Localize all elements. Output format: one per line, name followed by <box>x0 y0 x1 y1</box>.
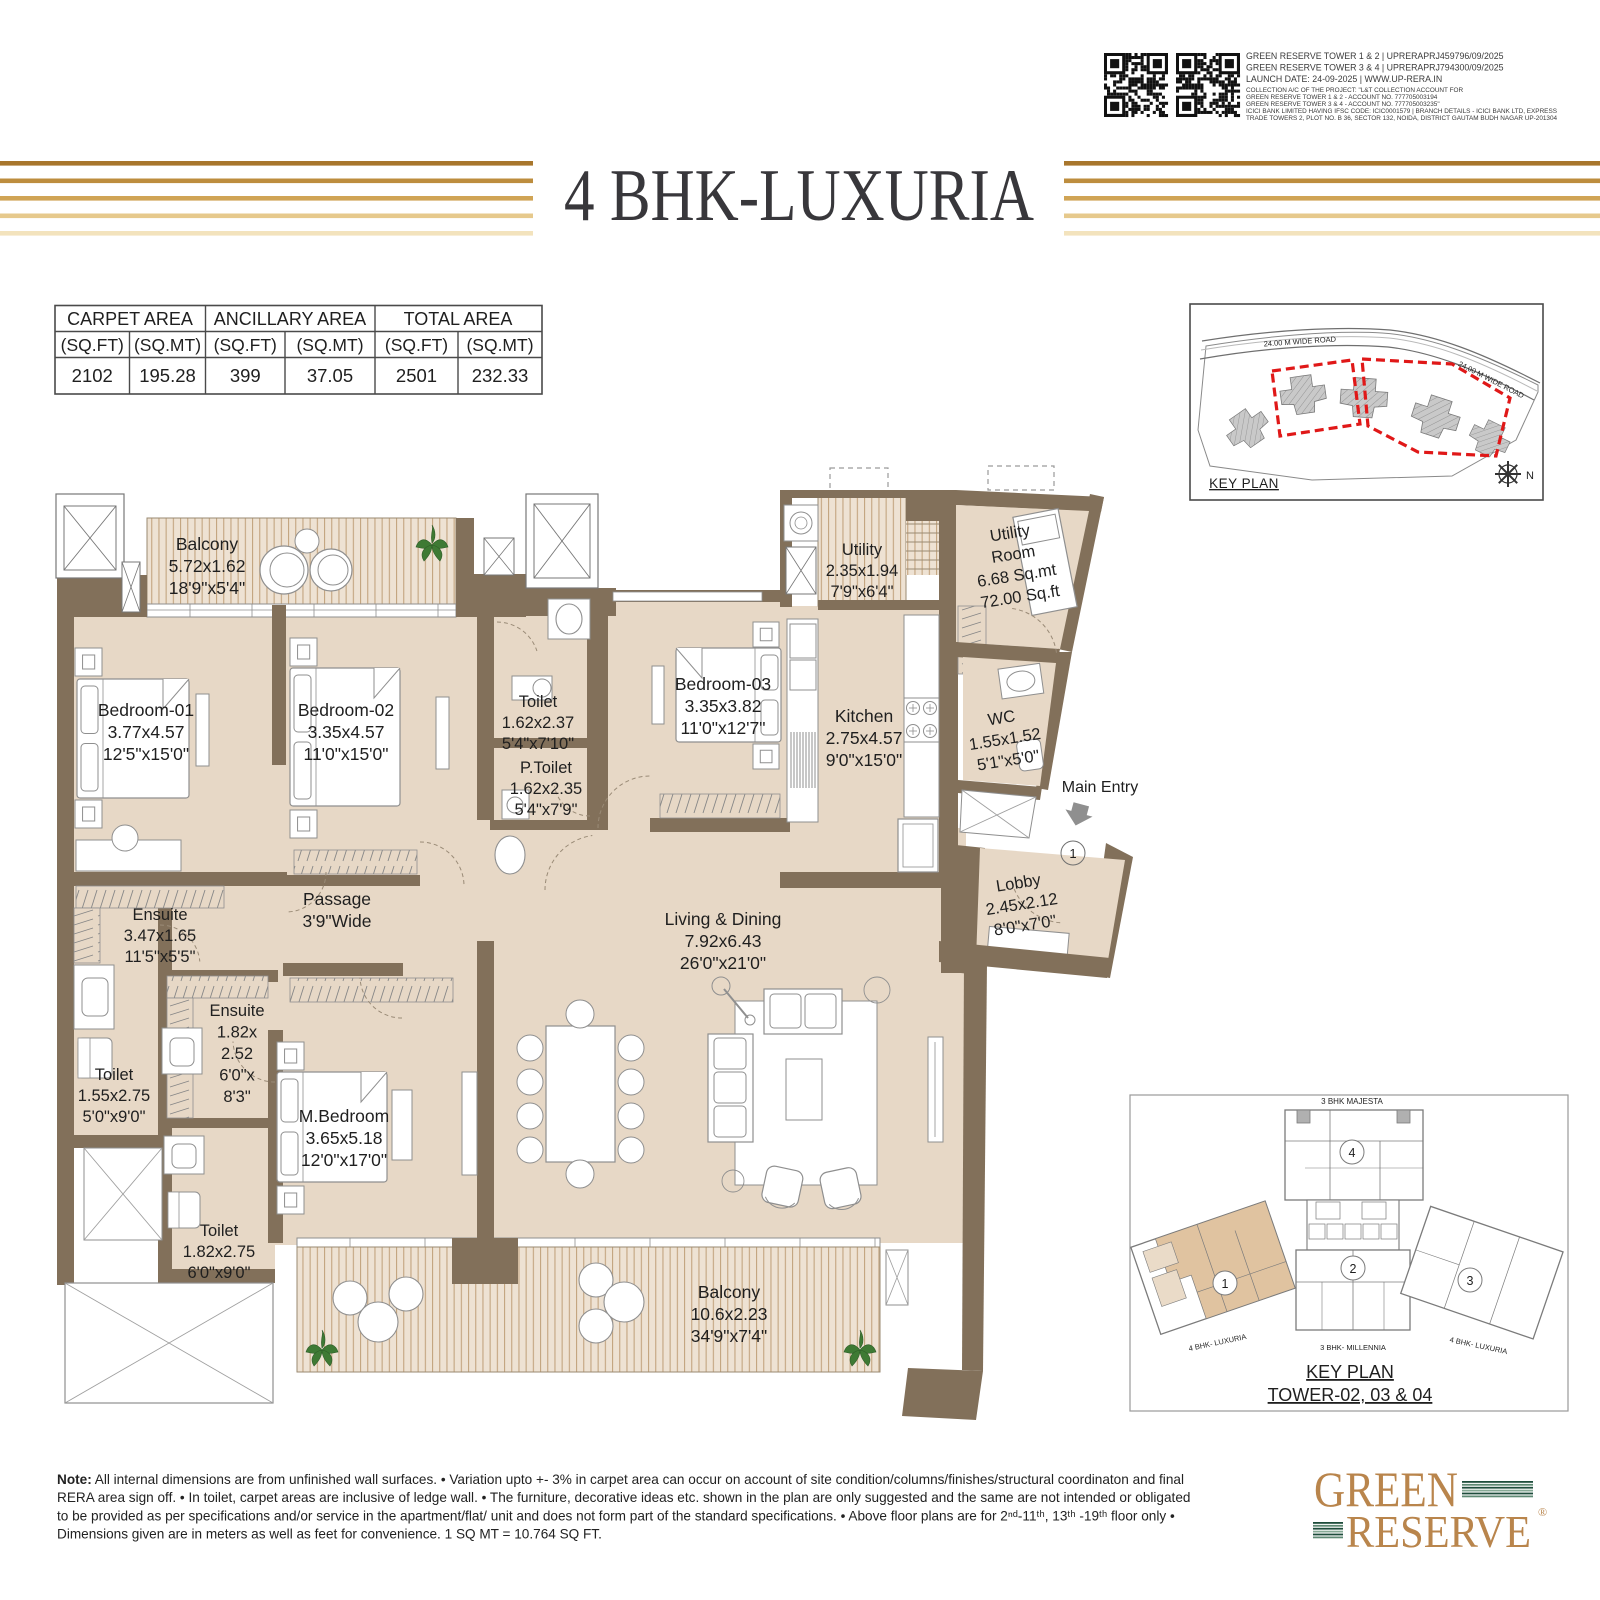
svg-text:COLLECTION A/C OF THE PROJECT:: COLLECTION A/C OF THE PROJECT: "L&T COLL… <box>1246 87 1463 94</box>
svg-text:Bedroom-03: Bedroom-03 <box>675 674 771 694</box>
svg-text:GREEN RESERVE TOWER 3 & 4 - AC: GREEN RESERVE TOWER 3 & 4 - ACCOUNT NO. … <box>1246 101 1440 108</box>
svg-text:2.35x1.94: 2.35x1.94 <box>826 562 898 580</box>
svg-text:1: 1 <box>1069 846 1076 861</box>
svg-text:3 BHK MAJESTA: 3 BHK MAJESTA <box>1321 1097 1383 1106</box>
svg-text:ICICI BANK LIMITED HAVING IFSC: ICICI BANK LIMITED HAVING IFSC CODE: ICI… <box>1246 108 1557 115</box>
svg-text:18'9"x5'4": 18'9"x5'4" <box>169 578 246 598</box>
svg-text:Living & Dining: Living & Dining <box>665 909 782 929</box>
svg-text:Passage: Passage <box>303 889 371 909</box>
svg-text:399: 399 <box>230 365 261 386</box>
svg-text:7'9"x6'4": 7'9"x6'4" <box>831 583 894 601</box>
svg-text:1.62x2.37: 1.62x2.37 <box>502 714 574 732</box>
svg-text:Main Entry: Main Entry <box>1062 779 1138 796</box>
svg-text:Utility: Utility <box>842 541 883 559</box>
svg-text:Ensuite: Ensuite <box>132 906 187 924</box>
svg-text:(SQ.MT): (SQ.MT) <box>134 335 201 355</box>
svg-text:KEY PLAN: KEY PLAN <box>1306 1362 1394 1382</box>
svg-text:CARPET AREA: CARPET AREA <box>67 309 193 329</box>
svg-text:Note: All internal dimensions: Note: All internal dimensions are from u… <box>57 1472 1184 1487</box>
svg-text:37.05: 37.05 <box>307 365 353 386</box>
svg-text:to be provided as per specific: to be provided as per specifications and… <box>57 1508 1175 1523</box>
svg-text:6'0"x: 6'0"x <box>219 1067 255 1085</box>
svg-text:GREEN RESERVE TOWER 1 & 2 - AC: GREEN RESERVE TOWER 1 & 2 - ACCOUNT NO. … <box>1246 94 1438 101</box>
svg-text:12'5"x15'0": 12'5"x15'0" <box>103 744 189 764</box>
svg-text:3.35x3.82: 3.35x3.82 <box>685 696 762 716</box>
svg-text:LAUNCH DATE: 24-09-2025 | WWW.: LAUNCH DATE: 24-09-2025 | WWW.UP-RERA.IN <box>1246 74 1442 84</box>
svg-text:GREEN RESERVE TOWER 1 & 2 | UP: GREEN RESERVE TOWER 1 & 2 | UPRERAPRJ459… <box>1246 51 1504 61</box>
svg-text:®: ® <box>1538 1505 1547 1519</box>
svg-text:(SQ.MT): (SQ.MT) <box>466 335 533 355</box>
svg-text:9'0"x15'0": 9'0"x15'0" <box>826 750 903 770</box>
svg-text:12'0"x17'0": 12'0"x17'0" <box>301 1150 387 1170</box>
svg-text:Kitchen: Kitchen <box>835 706 893 726</box>
svg-text:3'9"Wide: 3'9"Wide <box>303 911 372 931</box>
svg-text:2.75x4.57: 2.75x4.57 <box>826 728 903 748</box>
svg-text:6'0"x9'0": 6'0"x9'0" <box>188 1264 251 1282</box>
svg-text:P.Toilet: P.Toilet <box>520 759 572 777</box>
svg-text:2501: 2501 <box>396 365 437 386</box>
svg-text:(SQ.FT): (SQ.FT) <box>214 335 277 355</box>
svg-text:TOWER-02, 03 & 04: TOWER-02, 03 & 04 <box>1268 1385 1433 1405</box>
svg-text:232.33: 232.33 <box>472 365 529 386</box>
svg-text:5'0"x9'0": 5'0"x9'0" <box>83 1108 146 1126</box>
svg-text:(SQ.FT): (SQ.FT) <box>385 335 448 355</box>
svg-text:3.77x4.57: 3.77x4.57 <box>108 722 185 742</box>
svg-text:4: 4 <box>1349 1146 1356 1160</box>
svg-text:N: N <box>1526 470 1534 482</box>
svg-text:3: 3 <box>1467 1274 1474 1288</box>
svg-text:1.82x: 1.82x <box>217 1024 258 1042</box>
svg-text:RERA area sign off. • In toile: RERA area sign off. • In toilet, carpet … <box>57 1490 1190 1505</box>
svg-text:5'4"x7'9": 5'4"x7'9" <box>515 801 578 819</box>
svg-text:Ensuite: Ensuite <box>209 1002 264 1020</box>
svg-text:(SQ.MT): (SQ.MT) <box>296 335 363 355</box>
svg-text:11'5"x5'5": 11'5"x5'5" <box>125 948 196 966</box>
svg-text:Toilet: Toilet <box>95 1066 134 1084</box>
svg-text:3.47x1.65: 3.47x1.65 <box>124 927 196 945</box>
svg-text:Bedroom-01: Bedroom-01 <box>98 700 194 720</box>
svg-text:GREEN RESERVE TOWER 3 & 4 | UP: GREEN RESERVE TOWER 3 & 4 | UPRERAPRJ794… <box>1246 63 1504 73</box>
svg-text:10.6x2.23: 10.6x2.23 <box>691 1304 768 1324</box>
svg-text:5.72x1.62: 5.72x1.62 <box>169 556 246 576</box>
svg-text:RESERVE: RESERVE <box>1346 1506 1531 1557</box>
svg-text:11'0"x15'0": 11'0"x15'0" <box>304 744 389 764</box>
svg-text:11'0"x12'7": 11'0"x12'7" <box>681 718 766 738</box>
svg-text:34'9"x7'4": 34'9"x7'4" <box>691 1326 768 1346</box>
svg-text:Dimensions given are in meters: Dimensions given are in meters as well a… <box>57 1527 602 1542</box>
svg-text:TOTAL AREA: TOTAL AREA <box>404 309 513 329</box>
svg-text:3.65x5.18: 3.65x5.18 <box>306 1128 383 1148</box>
svg-text:1.55x2.75: 1.55x2.75 <box>78 1087 150 1105</box>
svg-text:2: 2 <box>1350 1262 1357 1276</box>
svg-text:195.28: 195.28 <box>139 365 196 386</box>
svg-text:5'4"x7'10": 5'4"x7'10" <box>502 735 574 753</box>
svg-text:KEY PLAN: KEY PLAN <box>1209 476 1279 491</box>
svg-text:ANCILLARY AREA: ANCILLARY AREA <box>214 309 366 329</box>
svg-text:3 BHK- MILLENNIA: 3 BHK- MILLENNIA <box>1320 1343 1386 1352</box>
svg-text:Toilet: Toilet <box>200 1222 239 1240</box>
svg-text:Bedroom-02: Bedroom-02 <box>298 700 394 720</box>
svg-text:1: 1 <box>1222 1277 1229 1291</box>
svg-text:1.62x2.35: 1.62x2.35 <box>510 780 582 798</box>
svg-text:(SQ.FT): (SQ.FT) <box>61 335 124 355</box>
svg-text:Balcony: Balcony <box>176 534 239 554</box>
svg-text:2102: 2102 <box>72 365 113 386</box>
svg-text:M.Bedroom: M.Bedroom <box>299 1106 389 1126</box>
svg-text:TRADE TOWERS 2, PLOT NO. B 36,: TRADE TOWERS 2, PLOT NO. B 36, SECTOR 13… <box>1246 115 1558 122</box>
svg-text:26'0"x21'0": 26'0"x21'0" <box>680 953 766 973</box>
svg-text:8'3": 8'3" <box>223 1088 251 1106</box>
svg-text:7.92x6.43: 7.92x6.43 <box>685 931 762 951</box>
svg-text:3.35x4.57: 3.35x4.57 <box>308 722 385 742</box>
svg-text:4 BHK-LUXURIA: 4 BHK-LUXURIA <box>564 155 1034 237</box>
svg-text:Toilet: Toilet <box>519 693 558 711</box>
svg-text:2.52: 2.52 <box>221 1045 253 1063</box>
svg-text:1.82x2.75: 1.82x2.75 <box>183 1243 255 1261</box>
svg-text:Balcony: Balcony <box>698 1282 761 1302</box>
